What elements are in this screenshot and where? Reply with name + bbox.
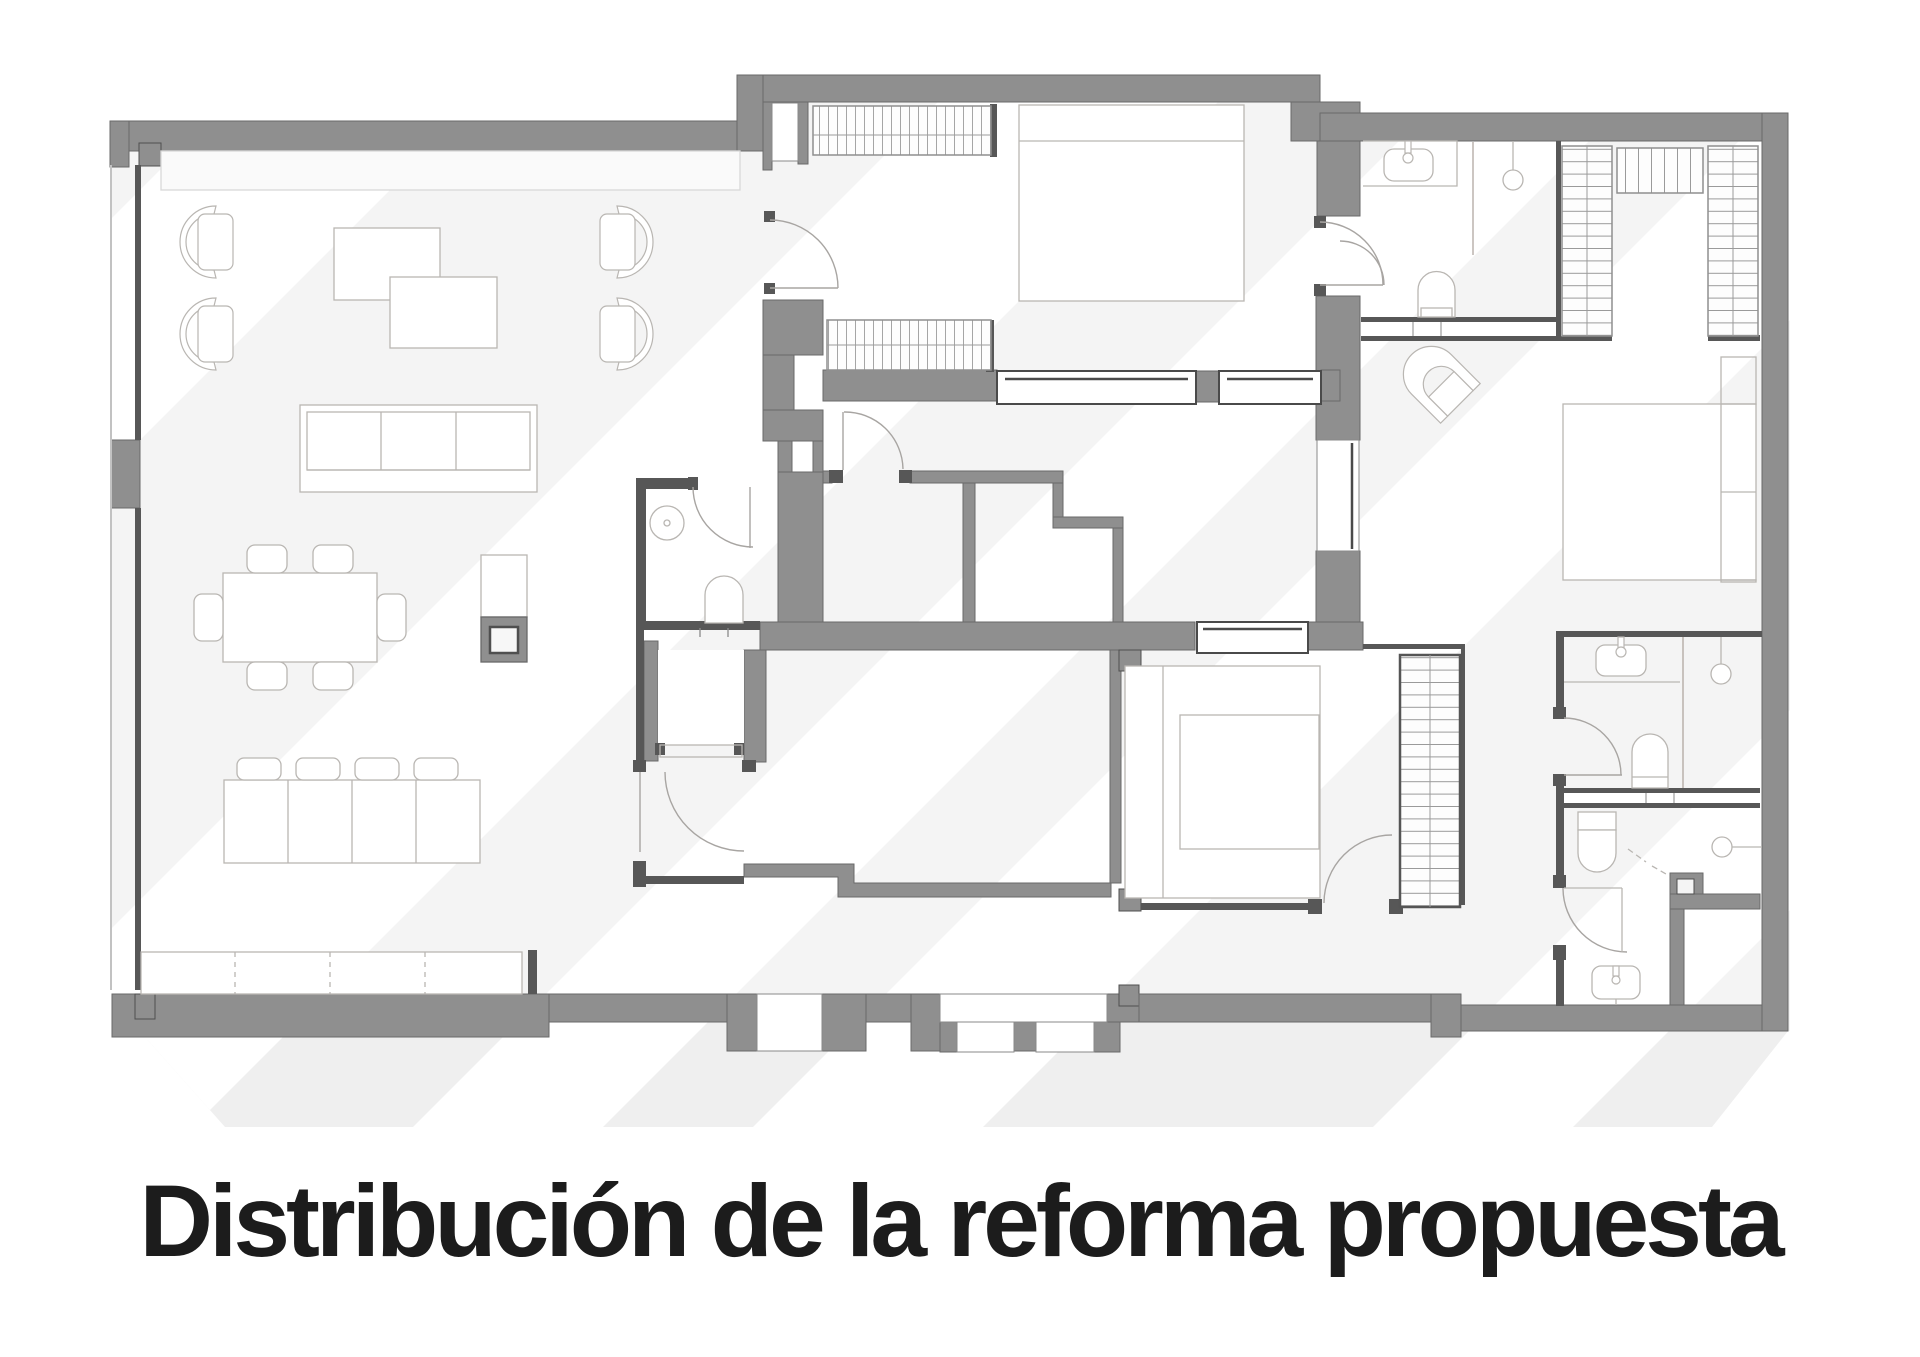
svg-text:Distribución de la reforma pro: Distribución de la reforma propuesta [139,1164,1786,1278]
